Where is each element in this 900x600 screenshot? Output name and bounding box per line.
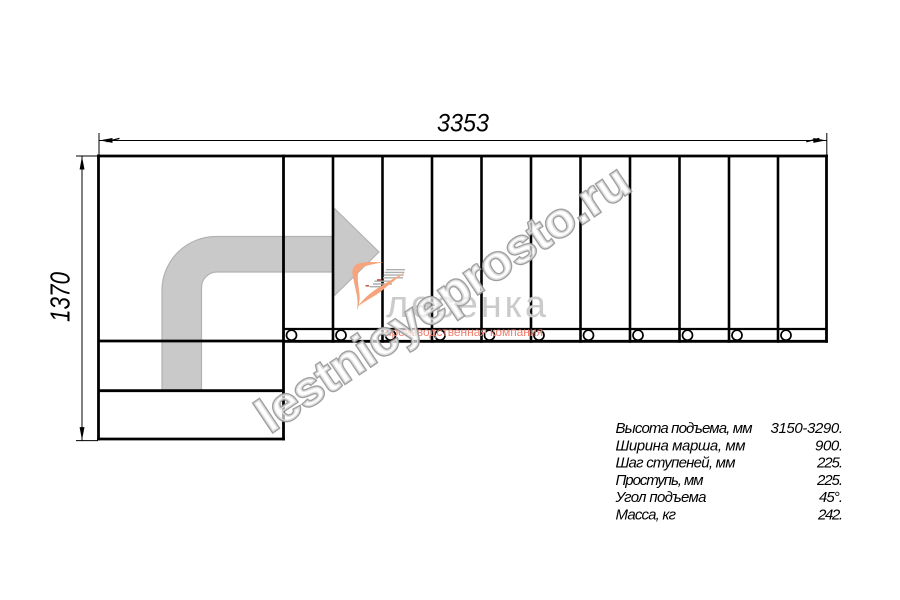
svg-text:225.: 225. [816, 472, 843, 489]
svg-text:Угол подъема: Угол подъема [615, 489, 707, 506]
svg-text:1370: 1370 [45, 272, 76, 322]
svg-text:Шаг ступеней, мм: Шаг ступеней, мм [616, 455, 736, 472]
svg-text:900.: 900. [815, 437, 843, 454]
svg-text:3353: 3353 [437, 110, 489, 138]
svg-text:Высота подъема, мм: Высота подъема, мм [616, 420, 753, 437]
svg-text:45°.: 45°. [819, 489, 843, 506]
svg-text:Проступь, мм: Проступь, мм [616, 472, 704, 489]
svg-text:3150-3290.: 3150-3290. [771, 420, 844, 437]
svg-text:Масса, кг: Масса, кг [616, 507, 677, 524]
svg-text:242.: 242. [817, 507, 843, 524]
svg-text:225.: 225. [816, 455, 843, 472]
svg-text:Ширина марша, мм: Ширина марша, мм [616, 437, 746, 454]
